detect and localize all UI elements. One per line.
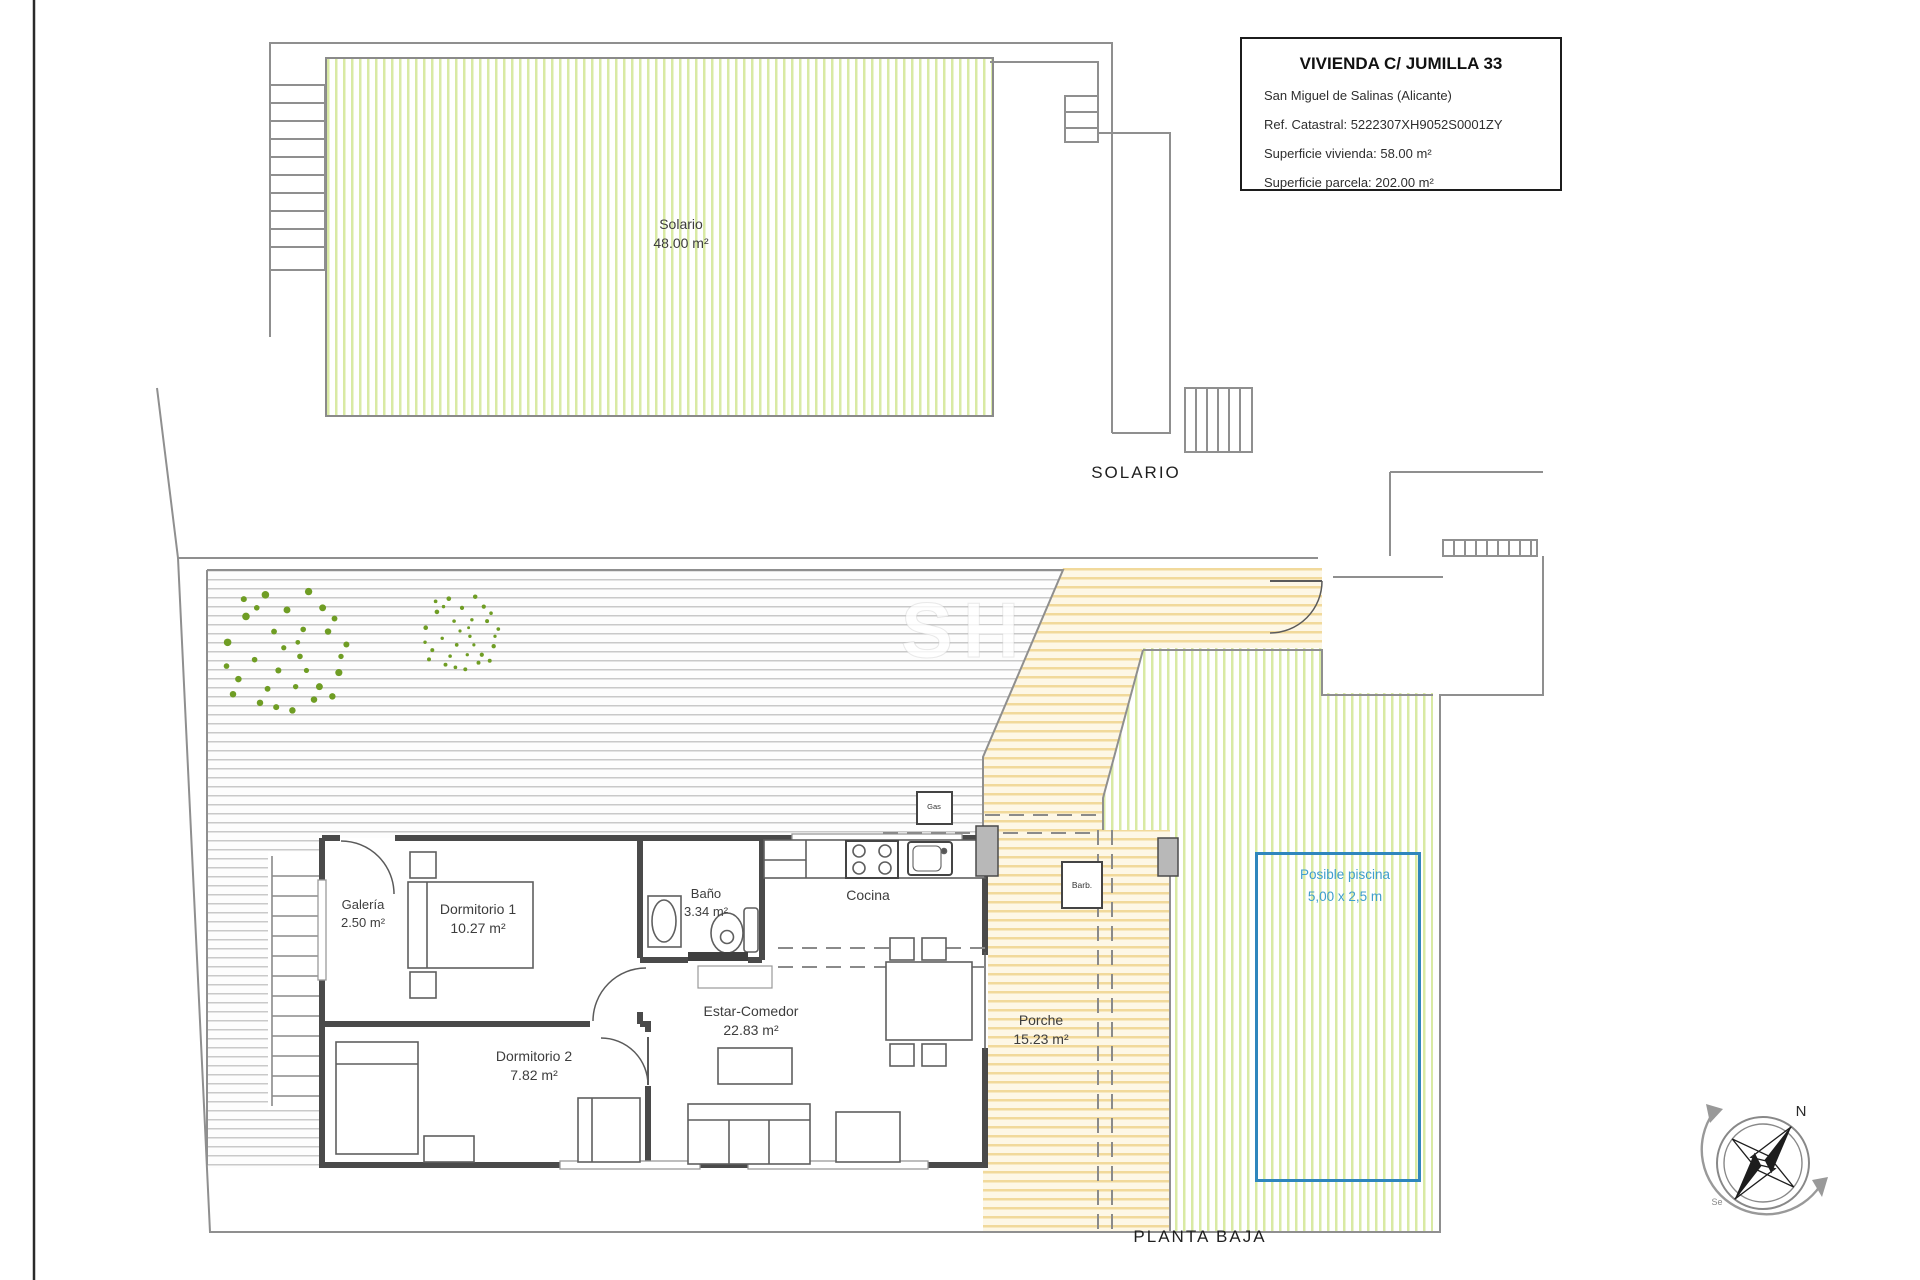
room-label-estar-comedor: Estar-Comedor 22.83 m² bbox=[704, 1002, 799, 1040]
floor-plan-sheet: VIVIENDA C/ JUMILLA 33 San Miguel de Sal… bbox=[0, 0, 1920, 1280]
title-block: VIVIENDA C/ JUMILLA 33 San Miguel de Sal… bbox=[1240, 37, 1562, 191]
barbecue-label: Barb. bbox=[1072, 880, 1092, 891]
lower-plan-caption: PLANTA BAJA bbox=[1133, 1227, 1266, 1247]
upper-plan-caption: SOLARIO bbox=[1091, 463, 1181, 483]
project-title: VIVIENDA C/ JUMILLA 33 bbox=[1242, 54, 1560, 74]
plot-area: Superficie parcela: 202.00 m² bbox=[1264, 175, 1560, 190]
pool-label: Posible piscina 5,00 x 2,5 m bbox=[1300, 864, 1390, 907]
galeria-footprint bbox=[268, 852, 327, 1110]
room-label-galeria: Galería 2.50 m² bbox=[339, 896, 387, 931]
watermark: SH bbox=[901, 585, 1029, 676]
room-label-bano: Baño 3.34 m² bbox=[684, 885, 728, 920]
solario-area-label: Solario 48.00 m² bbox=[653, 215, 708, 253]
room-label-porche: Porche 15.23 m² bbox=[1013, 1011, 1068, 1049]
room-label-dormitorio-2: Dormitorio 2 7.82 m² bbox=[496, 1047, 572, 1085]
gas-label: Gas bbox=[927, 802, 941, 812]
compass-se-label: Se bbox=[1711, 1196, 1722, 1208]
cadastral-ref: Ref. Catastral: 5222307XH9052S0001ZY bbox=[1264, 117, 1560, 132]
project-location: San Miguel de Salinas (Alicante) bbox=[1264, 88, 1560, 103]
room-label-dormitorio-1: Dormitorio 1 10.27 m² bbox=[440, 900, 516, 938]
dwelling-area: Superficie vivienda: 58.00 m² bbox=[1264, 146, 1560, 161]
compass-north-label: N bbox=[1796, 1102, 1807, 1122]
room-label-cocina: Cocina bbox=[846, 886, 890, 905]
